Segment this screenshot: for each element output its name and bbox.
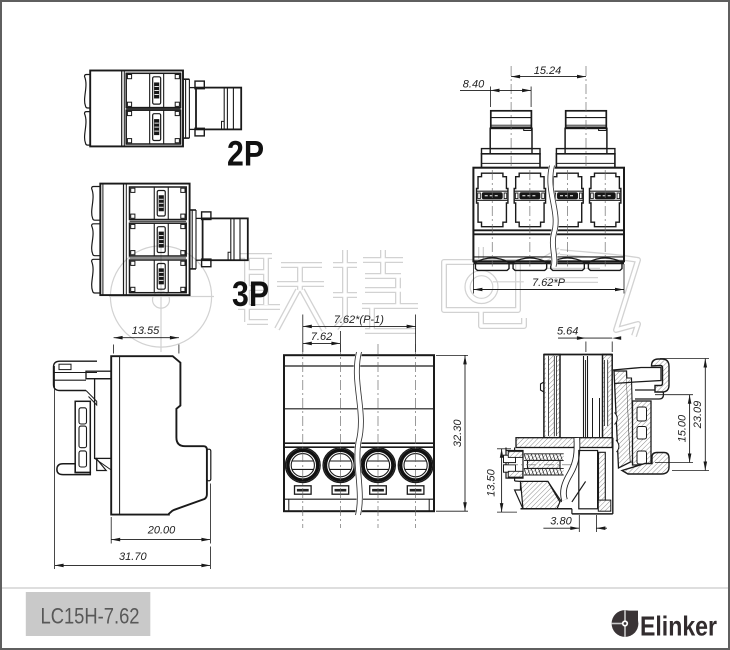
- svg-text:20.00: 20.00: [147, 525, 176, 537]
- svg-text:3P: 3P: [232, 275, 269, 314]
- svg-text:7.62: 7.62: [311, 331, 332, 343]
- svg-text:32.30: 32.30: [452, 419, 464, 447]
- svg-text:7.62*(P-1): 7.62*(P-1): [334, 314, 384, 326]
- svg-text:3.80: 3.80: [550, 515, 572, 527]
- svg-text:2P: 2P: [227, 135, 264, 174]
- svg-text:5.64: 5.64: [557, 325, 578, 337]
- svg-text:LC15H-7.62: LC15H-7.62: [41, 604, 140, 629]
- svg-text:15.24: 15.24: [534, 65, 562, 77]
- svg-text:Elinker: Elinker: [640, 611, 717, 642]
- svg-text:8.40: 8.40: [463, 79, 485, 91]
- svg-text:13.50: 13.50: [486, 468, 498, 496]
- svg-text:15.00: 15.00: [676, 414, 688, 442]
- svg-text:31.70: 31.70: [119, 551, 147, 563]
- svg-text:7.62*P: 7.62*P: [532, 277, 566, 289]
- svg-text:23.09: 23.09: [692, 401, 704, 430]
- svg-text:13.55: 13.55: [132, 325, 160, 337]
